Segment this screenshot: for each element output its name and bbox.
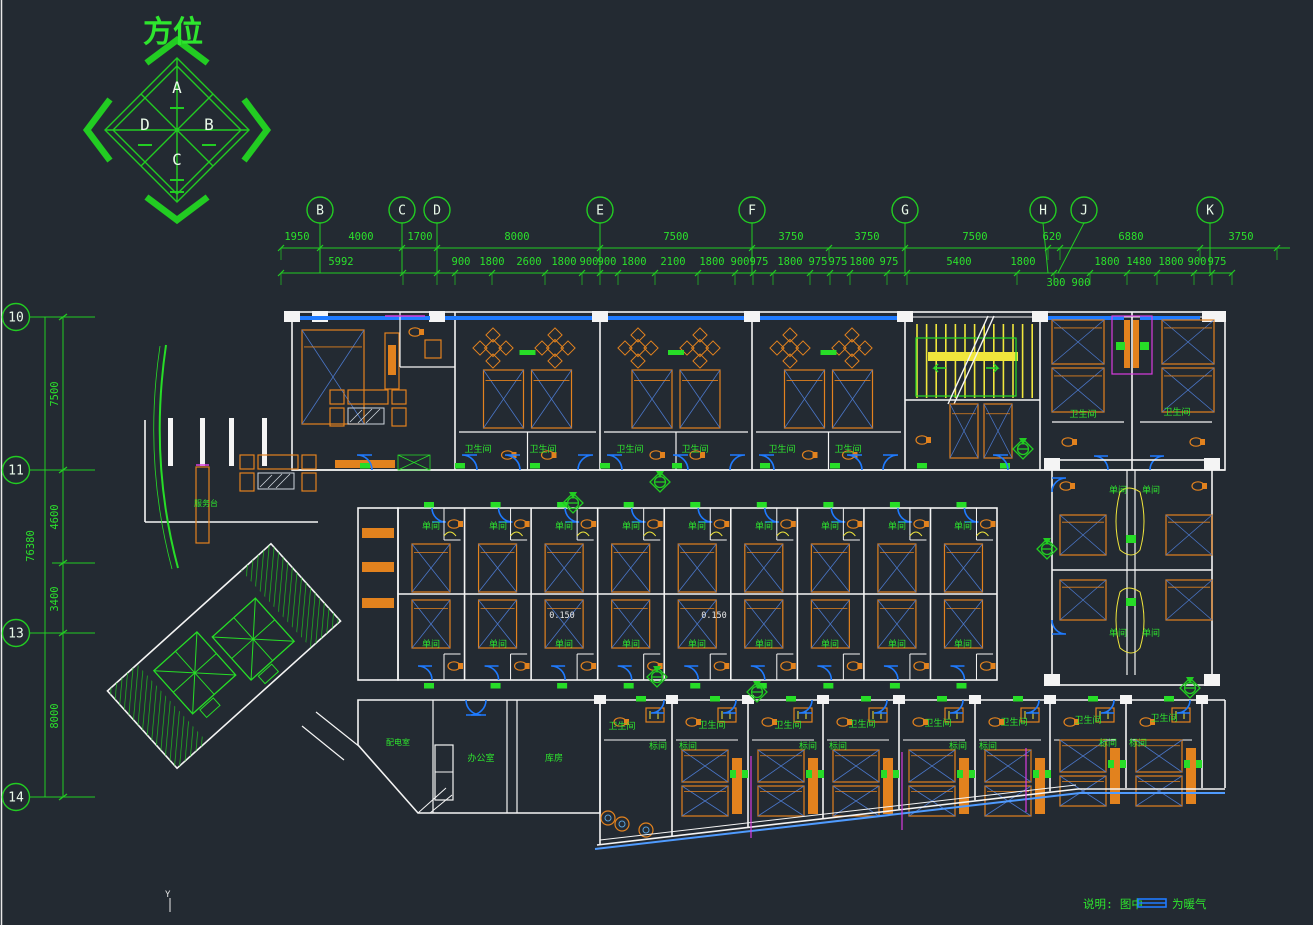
dimension-text: 1800 — [1094, 256, 1119, 268]
plan-label: 库房 — [545, 752, 563, 764]
elevator-block — [107, 544, 340, 768]
legend-suffix-text: 为暖气 — [1172, 897, 1207, 911]
dimension-text: 900 — [598, 256, 617, 268]
dimension-text: 1800 — [551, 256, 576, 268]
grid-bubble-label: 11 — [8, 464, 24, 479]
plan-label: 单间 — [954, 520, 972, 532]
dimension-text: 1800 — [1158, 256, 1183, 268]
dimension-text: 8000 — [504, 231, 529, 243]
plan-label: 0.150 — [701, 611, 727, 621]
plan-label: 单间 — [422, 520, 440, 532]
plan-label: 卫生间 — [924, 717, 951, 729]
grid-bubble-label: 13 — [8, 627, 24, 642]
plan-label: 卫生间 — [1069, 408, 1096, 420]
cad-canvas: 方位 ABCD BCDEFGHJK 1011131476380750046003… — [0, 0, 1313, 925]
grid-bubble-label: 10 — [8, 311, 24, 326]
section-marker — [1037, 538, 1057, 559]
dimension-text: 7500 — [663, 231, 688, 243]
plan-label: 0.150 — [549, 611, 575, 621]
plan-label: 单间 — [688, 638, 706, 650]
compass-letter: A — [172, 78, 182, 97]
dimension-text: 3750 — [778, 231, 803, 243]
dimension-text: 900 — [1072, 277, 1091, 289]
plan-label: 单间 — [622, 638, 640, 650]
dimension-text: 975 — [880, 256, 899, 268]
dimension-text: 1800 — [777, 256, 802, 268]
plan-label: 单间 — [821, 638, 839, 650]
plan-label: 单间 — [1142, 627, 1160, 639]
dimension-text: 5992 — [328, 256, 353, 268]
dimension-text: 900 — [1188, 256, 1207, 268]
plan-label: 单间 — [688, 520, 706, 532]
plan-label: 单间 — [755, 520, 773, 532]
dimension-text: 2600 — [516, 256, 541, 268]
heating-legend: 说明: 图中 为暖气 — [1083, 897, 1207, 911]
plan-label: 单间 — [489, 520, 507, 532]
plan-label: 卫生间 — [848, 718, 875, 730]
plan-label: 卫生间 — [681, 443, 708, 455]
compass-title: 方位 — [143, 15, 203, 50]
dimension-text: 300 — [1047, 277, 1066, 289]
plan-label: 单间 — [888, 638, 906, 650]
dimension-text: 1800 — [1010, 256, 1035, 268]
plan-label: 单间 — [821, 520, 839, 532]
grid-bubble-label: 14 — [8, 791, 24, 806]
grid-bubble-label: F — [748, 204, 756, 219]
legend-note-text: 说明: 图中 — [1083, 897, 1143, 911]
dimension-text: 900 — [452, 256, 471, 268]
dimension-text: 1800 — [849, 256, 874, 268]
plan-label: 卫生间 — [698, 719, 725, 731]
dimension-text: 5400 — [946, 256, 971, 268]
dimension-text: 1700 — [407, 231, 432, 243]
plan-label: 单间 — [489, 638, 507, 650]
plan-label: 卫生间 — [608, 720, 635, 732]
dimension-text: 900 — [731, 256, 750, 268]
dimension-text: 4600 — [49, 504, 61, 529]
dimension-text: 1800 — [479, 256, 504, 268]
dimension-text: 2100 — [660, 256, 685, 268]
grid-bubble-label: J — [1080, 204, 1088, 219]
plan-label: 卫生间 — [464, 443, 491, 455]
dimension-text: 3750 — [1228, 231, 1253, 243]
plan-label: 单间 — [622, 520, 640, 532]
plan-label: 标间 — [829, 740, 847, 752]
plan-label: 标间 — [1099, 737, 1117, 749]
dimension-text: 4000 — [348, 231, 373, 243]
dimension-text: 975 — [1208, 256, 1227, 268]
dimension-text: 975 — [750, 256, 769, 268]
ucs-icon: Y — [165, 890, 171, 912]
grid-axis-left: 10111314763807500460034008000 — [3, 304, 96, 811]
plan-label: 单间 — [755, 638, 773, 650]
plan-label: 标间 — [679, 740, 697, 752]
dimension-text: 6880 — [1118, 231, 1143, 243]
dimension-text: 620 — [1043, 231, 1062, 243]
dimension-strings: 1950400017008000750037503750750062068803… — [278, 231, 1290, 289]
plan-label: 标间 — [799, 740, 817, 752]
compass-rose — [87, 40, 267, 220]
plan-label: 办公室 — [467, 752, 494, 764]
floorplan-drawing: 方位 ABCD BCDEFGHJK 1011131476380750046003… — [0, 0, 1313, 925]
ucs-y-label: Y — [165, 890, 171, 900]
overall-dimension: 76380 — [25, 530, 37, 562]
dimension-text: 975 — [829, 256, 848, 268]
plan-label: 单间 — [954, 638, 972, 650]
dimension-text: 1480 — [1126, 256, 1151, 268]
dimension-text: 3750 — [854, 231, 879, 243]
plan-label: 单间 — [1142, 484, 1160, 496]
plan-label: 标间 — [1129, 737, 1147, 749]
section-marker — [1180, 677, 1200, 698]
room-labels: 卫生间卫生间卫生间卫生间卫生间卫生间卫生间卫生间单间单间单间单间单间单间单间单间… — [194, 406, 1191, 764]
plan-label: 卫生间 — [1074, 714, 1101, 726]
plan-linework — [107, 311, 1226, 849]
plan-label: 卫生间 — [529, 443, 556, 455]
dimension-text: 8000 — [49, 703, 61, 728]
compass-letter: B — [204, 115, 214, 134]
plan-label: 单间 — [422, 638, 440, 650]
dimension-text: 7500 — [49, 381, 61, 406]
plan-label: 卫生间 — [768, 443, 795, 455]
dimension-text: 900 — [580, 256, 599, 268]
grid-bubble-label: B — [316, 204, 324, 219]
dimension-text: 7500 — [962, 231, 987, 243]
plan-label: 单间 — [888, 520, 906, 532]
plan-label: 卫生间 — [834, 443, 861, 455]
plan-label: 标间 — [979, 740, 997, 752]
plan-label: 单间 — [555, 638, 573, 650]
dimension-text: 3400 — [49, 586, 61, 611]
plan-label: 单间 — [1109, 484, 1127, 496]
plan-label: 标间 — [949, 740, 967, 752]
dimension-text: 975 — [809, 256, 828, 268]
dimension-text: 1950 — [284, 231, 309, 243]
plan-label: 配电室 — [386, 737, 410, 747]
grid-bubble-label: G — [901, 204, 909, 219]
plan-label: 卫生间 — [616, 443, 643, 455]
dimension-text: 1800 — [699, 256, 724, 268]
plan-label: 单间 — [1109, 627, 1127, 639]
plan-label: 卫生间 — [1000, 716, 1027, 728]
plan-label: 卫生间 — [1150, 712, 1177, 724]
section-marker — [650, 471, 670, 492]
plan-label: 服务台 — [194, 498, 218, 508]
grid-bubble-label: C — [398, 204, 406, 219]
grid-bubble-label: H — [1039, 204, 1047, 219]
plan-label: 单间 — [555, 520, 573, 532]
section-marker — [1013, 438, 1033, 459]
grid-bubble-label: D — [433, 204, 441, 219]
plan-label: 卫生间 — [774, 719, 801, 731]
compass-letter: C — [172, 150, 182, 169]
plan-label: 标间 — [649, 740, 667, 752]
dimension-text: 1800 — [621, 256, 646, 268]
compass-letter: D — [140, 115, 150, 134]
plan-label: 卫生间 — [1163, 406, 1190, 418]
grid-bubble-label: E — [596, 204, 604, 219]
grid-bubble-label: K — [1206, 204, 1214, 219]
